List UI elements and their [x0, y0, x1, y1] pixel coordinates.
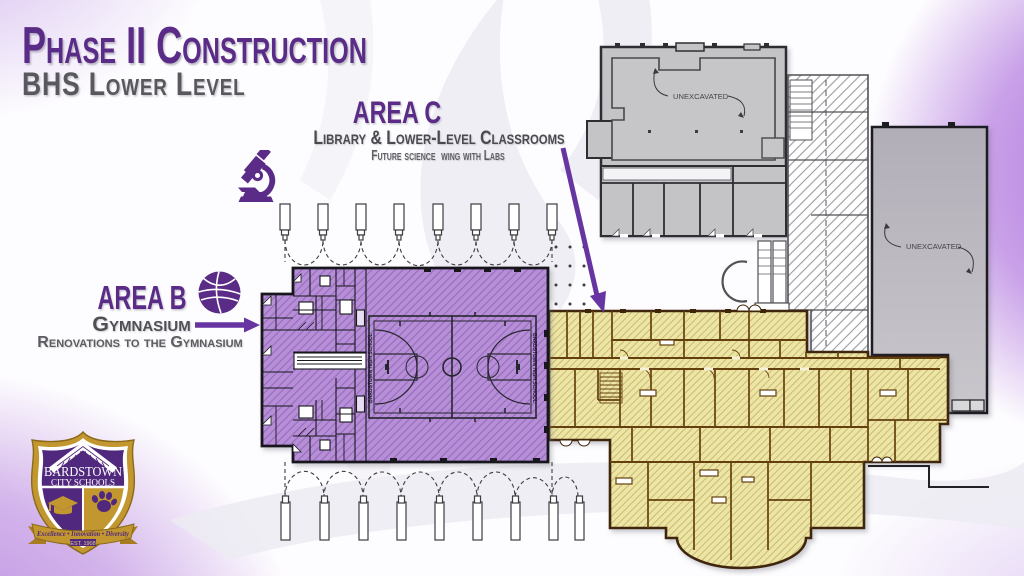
svg-text:UNEXCAVATED: UNEXCAVATED — [673, 92, 729, 101]
svg-text:BARDSTOWN HIGH SCHOOL: BARDSTOWN HIGH SCHOOL — [368, 333, 374, 403]
svg-text:CITY SCHOOLS: CITY SCHOOLS — [51, 478, 115, 488]
svg-text:UNEXCAVATED: UNEXCAVATED — [906, 242, 962, 251]
svg-text:BARDSTOWN HIGH SCHOOL: BARDSTOWN HIGH SCHOOL — [531, 333, 537, 403]
svg-text:Excellence • Innovation • Dive: Excellence • Innovation • Diversity — [36, 529, 129, 538]
svg-text:EST. 1908: EST. 1908 — [70, 541, 95, 547]
